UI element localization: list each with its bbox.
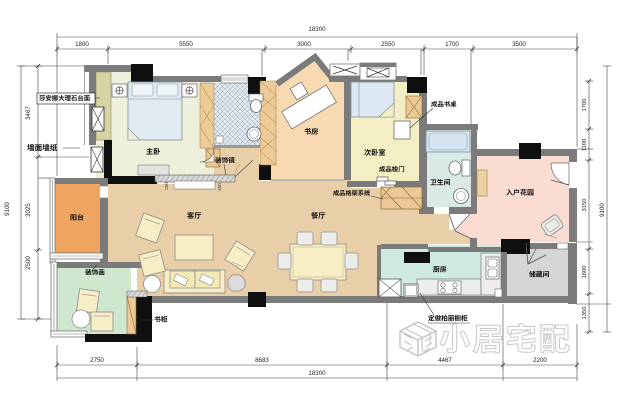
svg-text:8683: 8683 [255, 357, 269, 364]
svg-text:3500: 3500 [512, 41, 526, 48]
svg-text:2200: 2200 [533, 357, 547, 364]
svg-text:3150: 3150 [582, 199, 588, 212]
svg-text:4467: 4467 [438, 357, 452, 364]
svg-text:2750: 2750 [90, 357, 104, 364]
svg-text:1350: 1350 [582, 307, 588, 320]
svg-text:1700: 1700 [582, 99, 588, 112]
svg-text:18300: 18300 [308, 26, 326, 33]
svg-text:2500: 2500 [25, 256, 32, 270]
svg-text:1600: 1600 [582, 266, 588, 279]
svg-text:1700: 1700 [445, 41, 459, 48]
svg-text:450: 450 [217, 183, 222, 191]
svg-text:3000: 3000 [297, 41, 311, 48]
svg-text:1800: 1800 [75, 41, 89, 48]
svg-text:18300: 18300 [308, 370, 326, 377]
svg-text:9100: 9100 [599, 203, 606, 217]
svg-text:2550: 2550 [381, 41, 395, 48]
svg-text:9100: 9100 [4, 202, 11, 216]
svg-text:5550: 5550 [179, 41, 193, 48]
svg-text:250: 250 [164, 182, 169, 190]
svg-text:3467: 3467 [25, 106, 32, 120]
svg-text:3025: 3025 [25, 203, 32, 217]
svg-text:1100: 1100 [582, 139, 588, 151]
